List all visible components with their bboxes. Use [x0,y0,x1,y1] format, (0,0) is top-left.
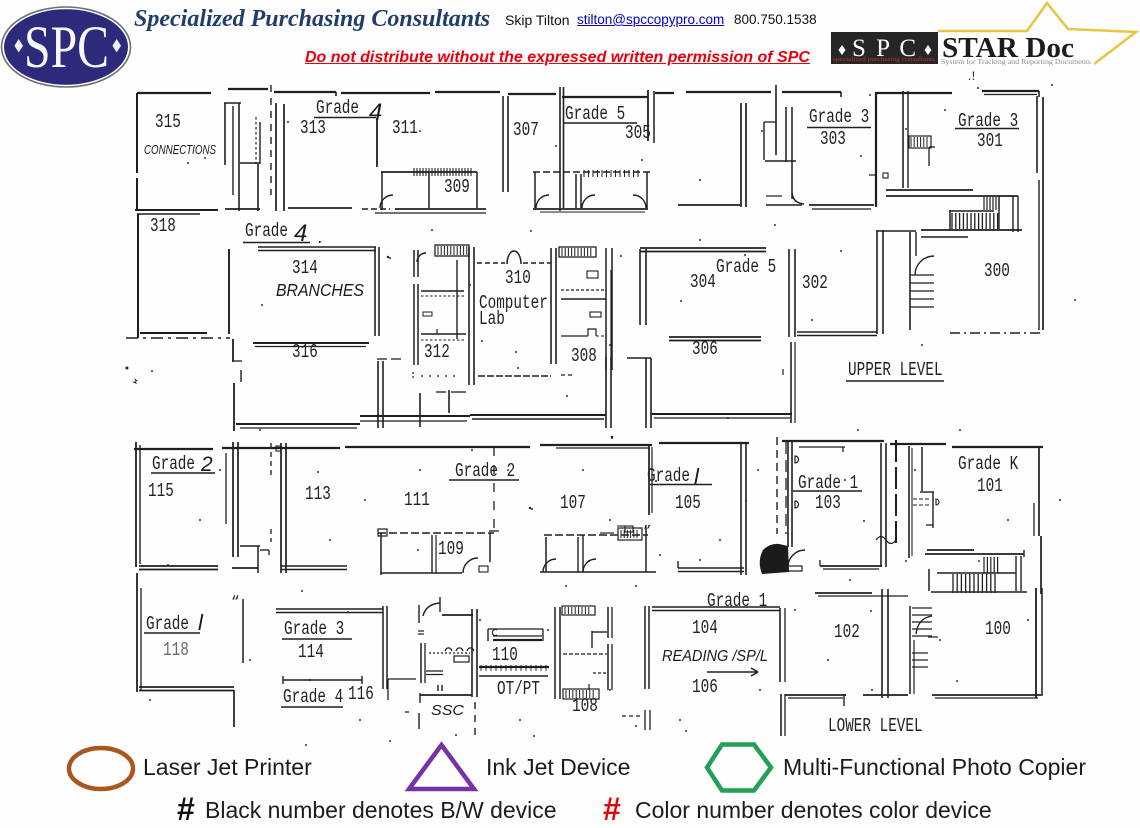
svg-text:Grade 2: Grade 2 [455,460,515,482]
svg-text:307: 307 [513,119,539,141]
svg-text:304: 304 [690,271,716,293]
svg-text:115: 115 [148,480,174,502]
svg-text:313: 313 [300,117,326,139]
svg-text:2: 2 [200,453,213,476]
svg-text:.!: .! [968,68,976,83]
svg-text:Grade: Grade [245,220,288,242]
svg-text:306: 306 [692,338,718,360]
svg-text:specialized purchasing consult: specialized purchasing consultants [833,56,936,63]
svg-text:4: 4 [294,220,307,247]
svg-text:.: . [318,227,323,247]
svg-text:309: 309 [444,176,470,198]
svg-text:308: 308 [571,345,597,367]
svg-text:118: 118 [163,639,189,661]
svg-text:314: 314 [292,257,318,279]
svg-text:101: 101 [977,475,1003,497]
svg-text:OT/PT: OT/PT [497,678,540,700]
svg-text:110: 110 [492,644,518,666]
svg-text:Lab: Lab [479,308,505,330]
svg-text:100: 100 [985,618,1011,640]
svg-text:“: “ [231,594,240,611]
svg-text:Grade 1: Grade 1 [707,590,767,612]
svg-text:114: 114 [298,641,324,663]
svg-text:READING /SP/L: READING /SP/L [662,648,768,665]
svg-text:l: l [198,610,204,635]
svg-text:Grade: Grade [152,453,195,475]
svg-text:300: 300 [984,260,1010,282]
svg-text:310: 310 [505,267,531,289]
svg-text:System for Tracking and Report: System for Tracking and Reporting Docume… [941,58,1091,66]
svg-text:104: 104 [692,617,718,639]
svg-text:LOWER LEVEL: LOWER LEVEL [828,715,923,737]
svg-text:305: 305 [625,122,651,144]
svg-text:Grade K: Grade K [958,453,1019,475]
svg-text:316: 316 [292,341,318,363]
svg-text:”: ” [643,524,652,538]
svg-text:105: 105 [675,492,701,514]
svg-text:302: 302 [802,272,828,294]
svg-text:318: 318 [150,215,176,237]
svg-text:4: 4 [369,99,382,126]
svg-text:BRANCHES: BRANCHES [276,280,364,300]
svg-text:103: 103 [815,492,841,514]
svg-text:Grade 5: Grade 5 [565,103,625,125]
svg-text:102: 102 [834,621,860,643]
svg-text:Grade 4: Grade 4 [283,686,343,708]
svg-text:113: 113 [305,483,331,505]
svg-text:108: 108 [572,695,598,717]
svg-text:315: 315 [155,111,181,133]
svg-text:301: 301 [977,130,1003,152]
svg-text:303: 303 [820,128,846,150]
svg-text:SPC: SPC [24,14,109,80]
svg-text:109: 109 [438,538,464,560]
svg-text:CONNECTIONS: CONNECTIONS [144,142,216,157]
svg-text:106: 106 [692,676,718,698]
svg-text:116: 116 [348,683,374,705]
svg-text:UPPER LEVEL: UPPER LEVEL [848,359,943,381]
svg-text:Grade: Grade [316,97,359,119]
svg-text:Grade 3: Grade 3 [809,106,869,128]
svg-text:Grade: Grade [647,465,690,487]
svg-text:111: 111 [404,489,430,511]
svg-text:312: 312 [424,341,450,363]
svg-text:SSC: SSC [431,702,464,719]
svg-text:107: 107 [560,492,586,514]
svg-text:Grade: Grade [146,613,189,635]
svg-text:Grade 3: Grade 3 [284,618,344,640]
svg-text:311: 311 [392,117,418,139]
svg-text:Grade 5: Grade 5 [716,256,776,278]
